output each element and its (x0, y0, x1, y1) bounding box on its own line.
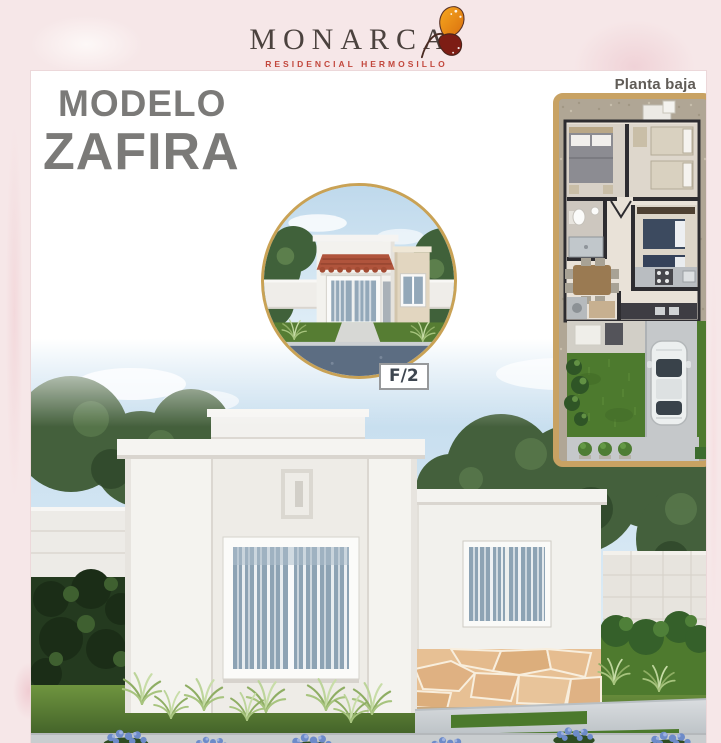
flyer-canvas: MONARCA RESIDENCIAL HERMOSILLO MODELO ZA… (0, 0, 721, 743)
brand-name: MONARCA (0, 25, 711, 55)
model-title-line1: MODELO (58, 85, 240, 122)
facade-type-badge: F/2 (379, 363, 429, 390)
car-top-view (647, 341, 691, 425)
brand-logo: MONARCA RESIDENCIAL HERMOSILLO (0, 0, 721, 70)
model-title-line2: ZAFIRA (43, 126, 240, 178)
content-panel: MODELO ZAFIRA (30, 70, 707, 743)
floor-plan-image (559, 99, 707, 461)
model-title: MODELO ZAFIRA (43, 85, 240, 178)
floor-plan-panel (553, 93, 707, 467)
butterfly-icon (419, 3, 467, 60)
exterior-photo-inset (261, 183, 457, 379)
exterior-photo (264, 186, 454, 376)
brand-tagline: RESIDENCIAL HERMOSILLO (0, 59, 717, 69)
floor-plan-label: Planta baja (615, 76, 696, 93)
